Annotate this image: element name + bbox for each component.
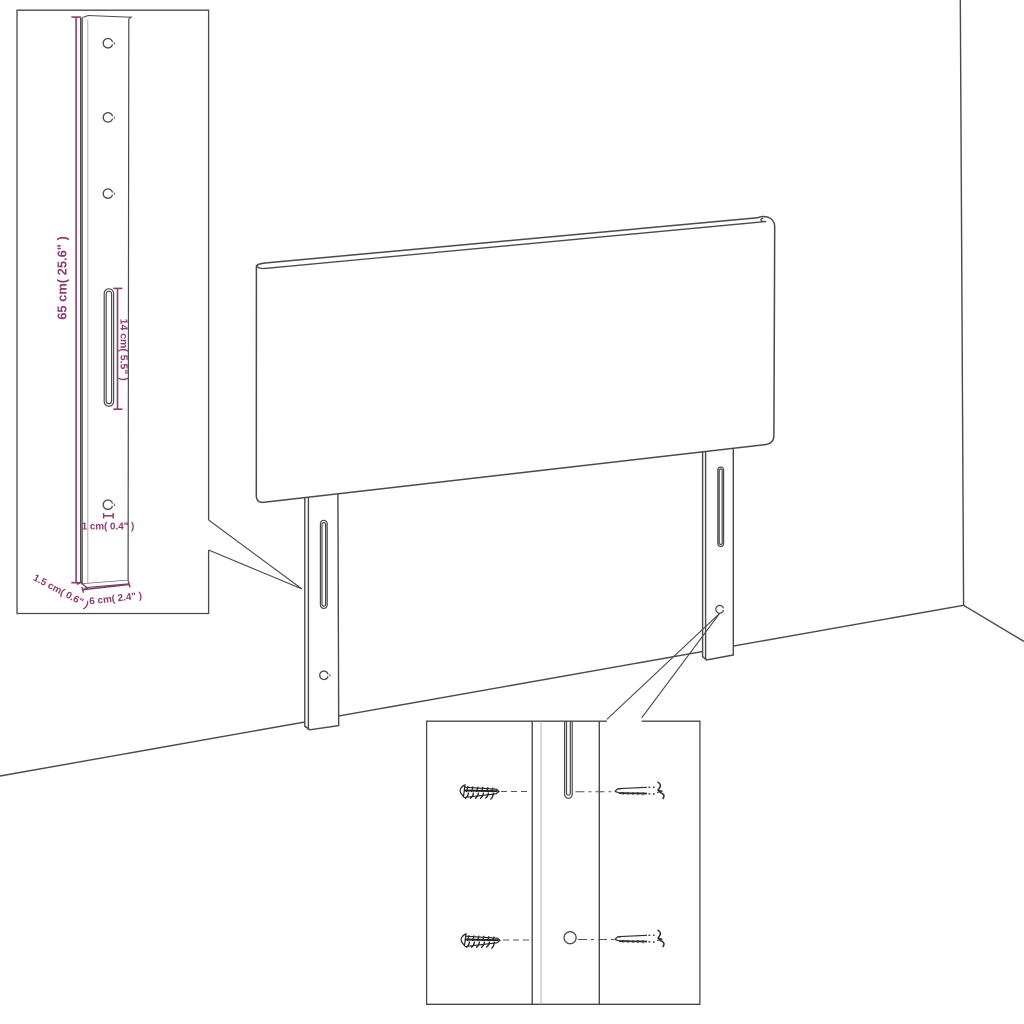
svg-text:65 cm( 25.6" ): 65 cm( 25.6" ) xyxy=(54,236,69,320)
svg-text:14 cm( 5.5" ): 14 cm( 5.5" ) xyxy=(118,319,130,381)
svg-text:1 cm( 0.4" ): 1 cm( 0.4" ) xyxy=(82,522,135,533)
